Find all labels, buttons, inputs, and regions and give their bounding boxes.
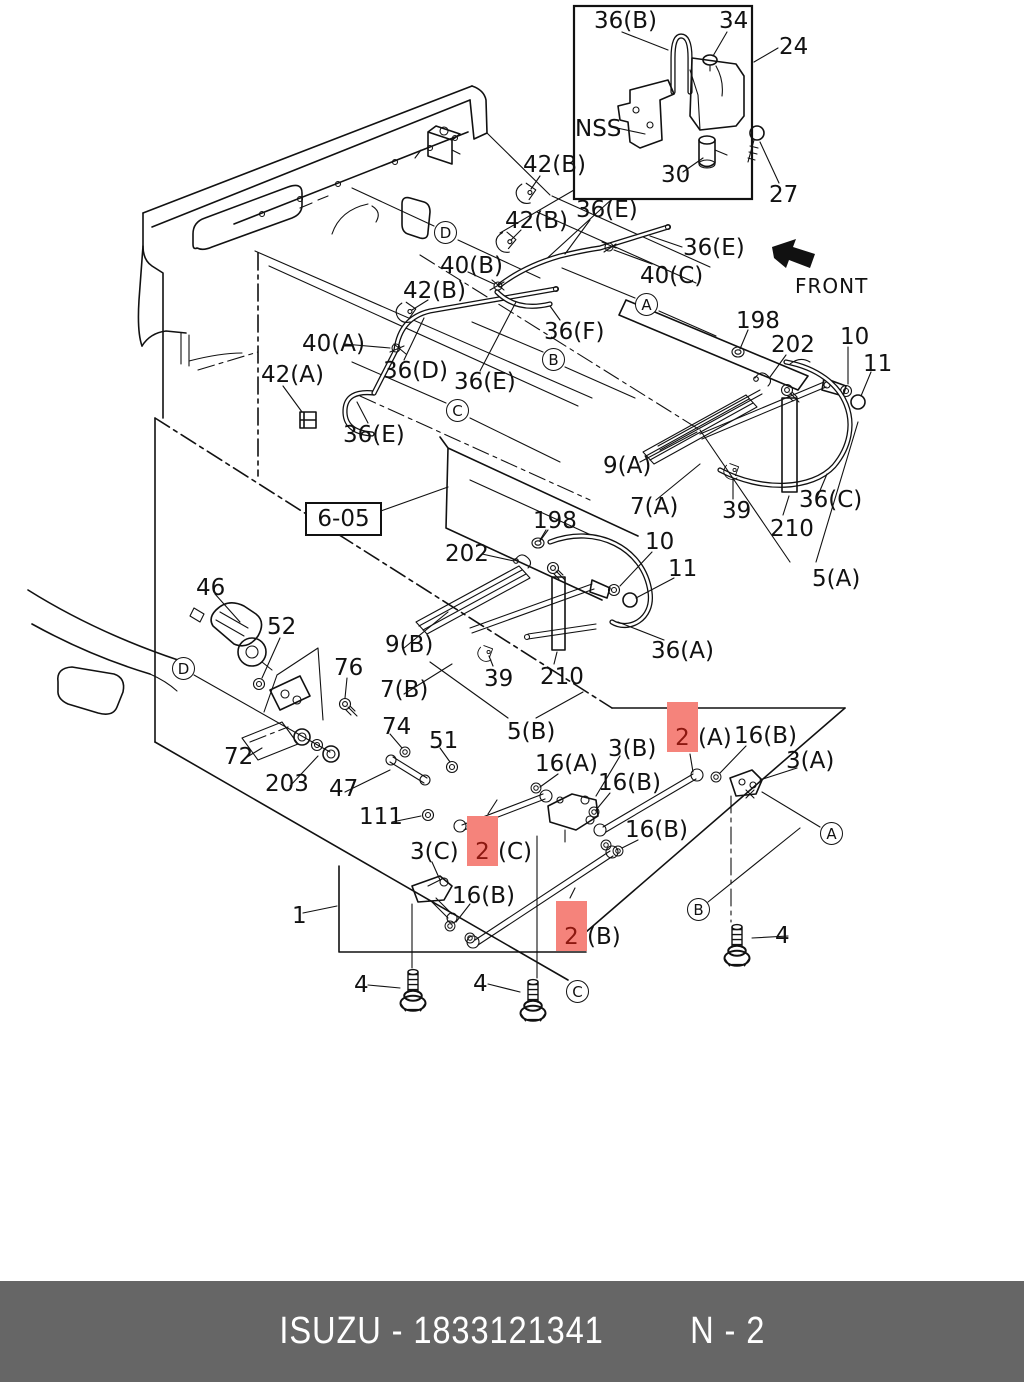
ref-section-box: 6-05	[305, 502, 382, 536]
part-label: 36(E)	[343, 424, 405, 447]
footer-bar: ISUZU - 1833121341 N - 2	[0, 1281, 1024, 1382]
part-label: 203	[265, 773, 309, 796]
part-label: 202	[771, 334, 815, 357]
footer-page-ref: N - 2	[690, 1310, 765, 1353]
part-label: 7(A)	[630, 496, 678, 519]
part-label: 40(A)	[302, 333, 365, 356]
part-label: 202	[445, 543, 489, 566]
diagram-canvas	[0, 0, 1024, 1281]
part-label: 111	[359, 806, 403, 829]
part-label: 16(B)	[452, 885, 515, 908]
part-label: 4	[473, 973, 488, 996]
part-label: 42(B)	[523, 154, 586, 177]
part-label: 16(B)	[734, 725, 797, 748]
parts-diagram-page: 36(B)3424NSS302742(B)42(B)36(E)36(E)40(C…	[0, 0, 1024, 1382]
section-marker: D	[434, 221, 457, 244]
section-marker: C	[566, 980, 589, 1003]
section-marker: A	[820, 822, 843, 845]
section-marker: D	[172, 657, 195, 680]
part-label: 52	[267, 616, 296, 639]
part-label: 4	[775, 925, 790, 948]
part-label: 47	[329, 778, 358, 801]
part-label: 198	[736, 310, 780, 333]
part-label: 51	[429, 730, 458, 753]
part-label: 10	[840, 326, 869, 349]
section-marker: C	[446, 399, 469, 422]
part-label: 7(B)	[380, 679, 428, 702]
section-marker: A	[635, 293, 658, 316]
part-label: 1	[292, 905, 307, 928]
part-label: 36(E)	[683, 237, 745, 260]
part-label: 36(F)	[544, 321, 604, 344]
part-label: 42(B)	[505, 210, 568, 233]
part-label: 9(B)	[385, 634, 433, 657]
part-label: 9(A)	[603, 455, 651, 478]
part-label: 74	[382, 716, 411, 739]
part-label: 210	[540, 666, 584, 689]
section-marker: B	[542, 348, 565, 371]
part-label: 210	[770, 518, 814, 541]
part-label: 4	[354, 974, 369, 997]
front-arrow-icon	[772, 239, 815, 268]
part-label: 198	[533, 510, 577, 533]
part-label: 36(A)	[651, 640, 714, 663]
part-label: 40(B)	[440, 255, 503, 278]
part-label: 76	[334, 657, 363, 680]
part-label: NSS	[575, 118, 621, 141]
part-label: 27	[769, 184, 798, 207]
part-label: 2(C)	[467, 816, 532, 866]
part-label: 3(C)	[410, 841, 459, 864]
section-marker: B	[687, 898, 710, 921]
part-label: 11	[668, 558, 697, 581]
part-label: 42(A)	[261, 364, 324, 387]
part-label: 3(A)	[786, 750, 834, 773]
part-label: 5(B)	[507, 721, 555, 744]
part-label: 10	[645, 531, 674, 554]
part-label: 36(C)	[799, 489, 862, 512]
part-label: 16(A)	[535, 753, 598, 776]
part-label: 2(B)	[556, 901, 621, 951]
part-label: 34	[719, 10, 748, 33]
part-label: 36(E)	[576, 199, 638, 222]
part-label: 72	[224, 746, 253, 769]
part-label: 30	[661, 164, 690, 187]
part-label: 36(B)	[594, 10, 657, 33]
part-label: 40(C)	[640, 265, 703, 288]
part-label: 24	[779, 36, 808, 59]
part-label: 46	[196, 577, 225, 600]
part-label: 39	[722, 500, 751, 523]
part-label: 36(D)	[383, 360, 448, 383]
part-label: 11	[863, 353, 892, 376]
footer-part-number: ISUZU - 1833121341	[279, 1310, 603, 1353]
part-label: 16(B)	[625, 819, 688, 842]
front-label: FRONT	[795, 274, 868, 298]
part-label: 2(A)	[667, 702, 732, 752]
part-label: 5(A)	[812, 568, 860, 591]
part-label: 36(E)	[454, 371, 516, 394]
part-label: 42(B)	[403, 280, 466, 303]
part-label: 39	[484, 668, 513, 691]
part-label: 16(B)	[598, 772, 661, 795]
part-label: 3(B)	[608, 738, 656, 761]
